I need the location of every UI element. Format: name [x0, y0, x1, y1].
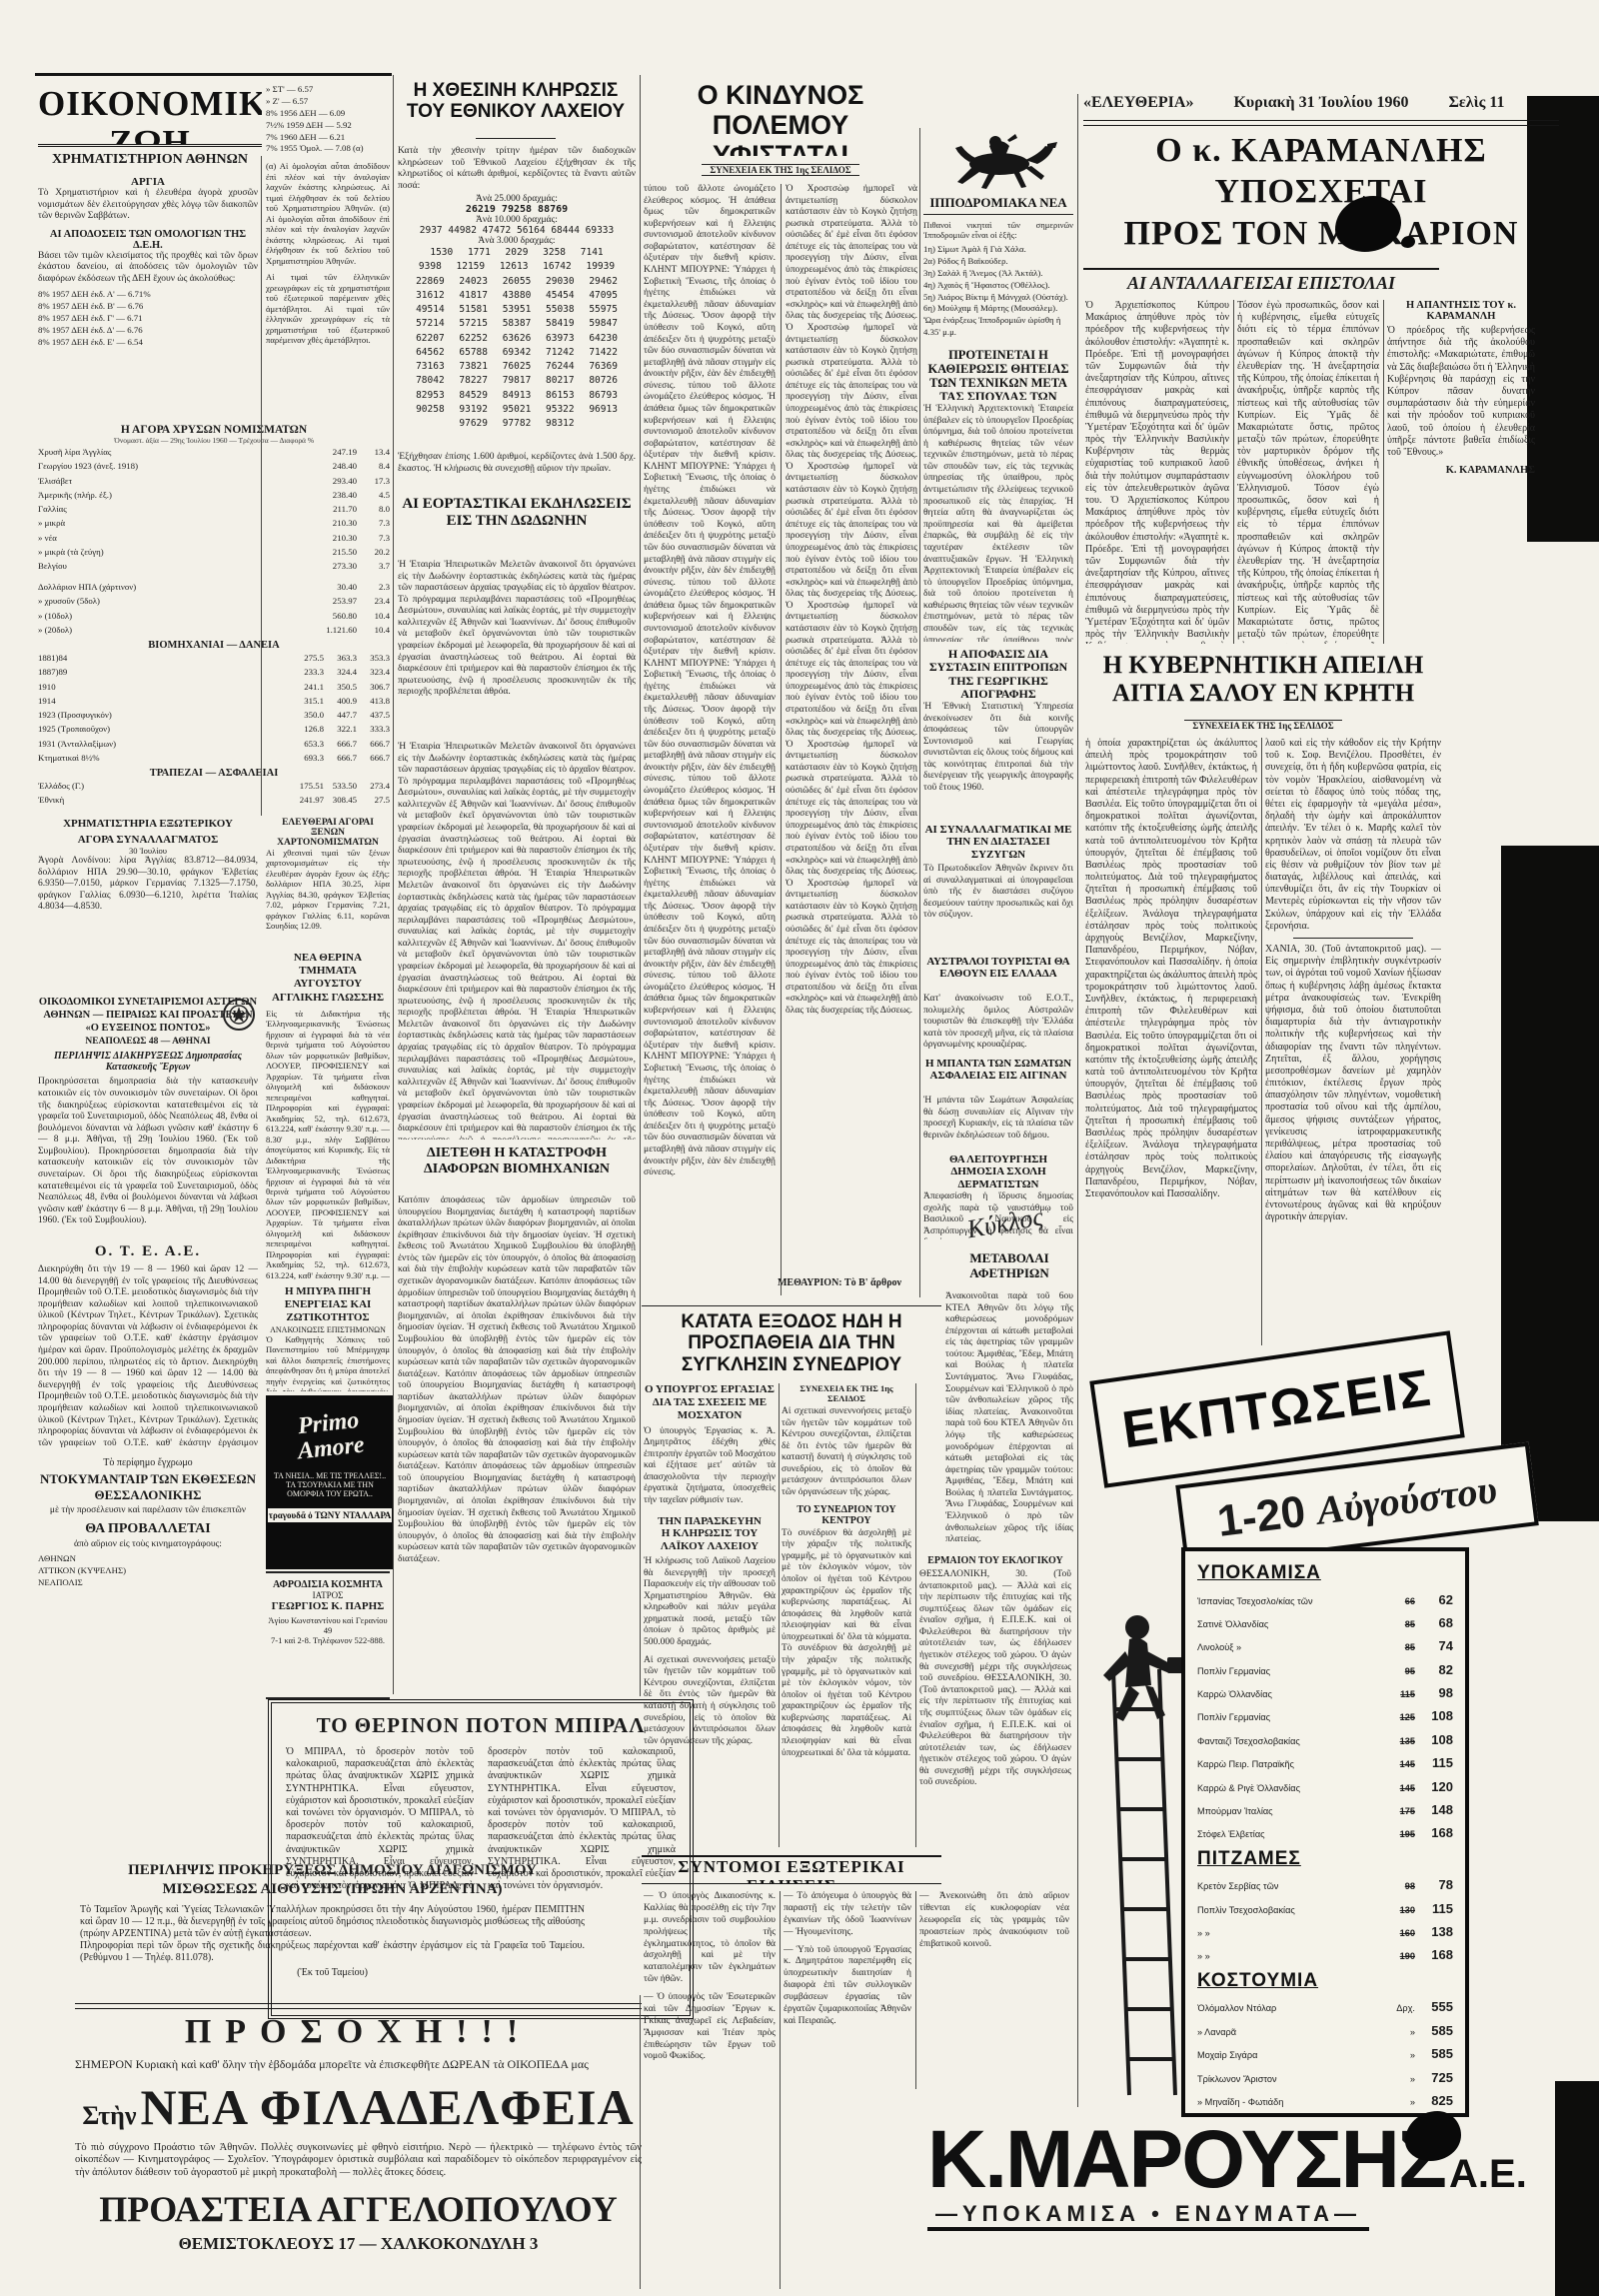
list-item: 8% 1957 ΔΕΗ ἐκδ. Ε' — 6.54: [38, 337, 258, 349]
crete-col2: λαοῦ καὶ εἰς τὴν κάθοδον εἰς τὴν Κρήτην …: [1265, 738, 1441, 1345]
table-row: » χρυσοῦν (5δολ)253.9723.4: [38, 594, 390, 608]
list-item: — Ὁ ὑπουργὸς Δικαιοσύνης κ. Καλλίας θὰ π…: [644, 1891, 776, 1986]
agora-title: ΑΓΟΡΑ ΣΥΝΑΛΛΑΓΜΑΤΟΣ: [38, 834, 258, 846]
table-row: » »190168: [1197, 1943, 1453, 1966]
coop-address: ΝΕΑΠΟΛΕΩΣ 48 — ΑΘΗΝΑΙ: [38, 1037, 258, 1047]
table-row: Φανταιζὶ Τσεχοσλοβακίας135108: [1197, 1728, 1453, 1751]
table-row: Μπούρμαν Ἰταλίας175148: [1197, 1798, 1453, 1821]
shortnews-title: ΣΥΝΤΟΜΟΙ ΕΞΩΤΕΡΙΚΑΙ ΕΙΔΗΣΕΙΣ: [642, 1855, 941, 1884]
financial-header-text: ΟΙΚΟΝΟΜΙΚΗ ΖΩΗ: [38, 84, 262, 147]
bond-rows: 1881)84275.5363.3353.31887)89233.3324.43…: [38, 651, 390, 765]
table-row: Χρυσῆ λίρα Ἀγγλίας247.1913.4: [38, 445, 390, 459]
table-row: » Λαναρᾶ»585: [1197, 2019, 1453, 2042]
congress-body2b: Τὸ συνέδριον θὰ ἀσχοληθῇ μὲ τὴν χάραξιν …: [782, 1528, 911, 1760]
reply-heading: Η ΑΠΑΝΤΗΣΙΣ ΤΟΥ κ. ΚΑΡΑΜΑΝΛΗ: [1387, 300, 1535, 322]
list-item: » ΣΤ' — 6.57: [266, 84, 390, 96]
war-ender: ΜΕΘΑΥΡΙΟΝ: Τὸ Β' ἄρθρον: [760, 1277, 919, 1293]
bills-title: ΑΙ ΣΥΝΑΛΛΑΓΜΑΤΙΚΑΙ ΜΕ ΤΗΝ ΕΝ ΔΙΑΣΤΑΣΕΙ Σ…: [923, 824, 1073, 860]
deh-rate-list-right: » ΣΤ' — 6.57» Ζ' — 6.578% 1956 ΔΕΗ — 6.0…: [266, 84, 390, 155]
suits-rows: Ὁλόμαλλον ΝτόλαρΔρχ.555» Λαναρᾶ»585Μοχαὶ…: [1197, 1995, 1453, 2117]
beer-article: Η ΜΠΥΡΑ ΠΗΓΗ ΕΝΕΡΓΕΙΑΣ ΚΑΙ ΖΩΤΙΚΟΤΗΤΟΣ Α…: [266, 1285, 390, 1391]
doctor-ad-line4: Ἁγίου Κωνσταντίνου καὶ Γερανίου 49: [266, 1615, 390, 1635]
shirts-rows: Ἰσπανίας Τσεχοσλο/κίας τῶν6662Σατινὲ Ὁλλ…: [1197, 1588, 1453, 1845]
primo-line1: ΤΑ ΝΗΣΙΑ.. ΜΕ ΤΙΣ ΤΡΕΛΛΕΣ!..: [268, 1471, 392, 1480]
list-item: 7% 1960 ΔΕΗ — 6.21: [266, 132, 390, 144]
rule-col3: [640, 75, 641, 1696]
financial-rates-right: » ΣΤ' — 6.57» Ζ' — 6.578% 1956 ΔΕΗ — 6.0…: [266, 84, 390, 418]
doctor-ad-line1: ΑΦΡΟΔΙΣΙΑ ΚΟΣΜΗΤΑ: [266, 1579, 390, 1590]
prize-25000-label: Ἀνὰ 25.000 δραχμάς:: [398, 194, 636, 204]
doctor-ad-line3: ΓΕΩΡΓΙΟΣ Κ. ΠΑΡΗΣ: [266, 1600, 390, 1612]
lottery-intro: Κατὰ τὴν χθεσινὴν τρίτην ἡμέραν τῶν διαδ…: [398, 146, 636, 192]
congress-sub1: ΤΟ ΣΥΝΕΔΡΙΟΝ ΤΟΥ ΚΕΝΤΡΟΥ: [782, 1504, 911, 1526]
summer-classes-body: Εἰς τὰ Διδακτήρια τῆς Ἑλληνοαμερικανικῆς…: [266, 1009, 390, 1281]
table-row: » (20δολ)1.121.6010.4: [38, 623, 390, 636]
congress-col1: Ο ΥΠΟΥΡΓΟΣ ΕΡΓΑΣΙΑΣ ΔΙΑ ΤΑΣ ΣΧΕΣΕΙΣ ΜΕ Μ…: [644, 1383, 776, 1847]
table-row: » Μηναΐδη - Φωτιάδη»825: [1197, 2089, 1453, 2112]
list-item: — Ὑπὸ τοῦ ὑπουργοῦ Ἐργασίας κ. Δημητράτο…: [784, 1945, 911, 2028]
financial-header: ΟΙΚΟΝΟΜΙΚΗ ΖΩΗ: [38, 84, 262, 147]
land-ad-address: ΘΕΜΙΣΤΟΚΛΕΟΥΣ 17 — ΧΑΛΚΟΚΟΝΔΥΛΗ 3: [75, 2234, 642, 2254]
doctor-ad-line5: 7-1 καὶ 2-8. Τηλέφωνον 522-888.: [266, 1635, 390, 1645]
list-item: — Τὸ ἀπόγευμα ὁ ὑπουργὸς θὰ παραστῇ εἰς …: [784, 1891, 911, 1939]
list-item: ΑΘΗΝΩΝ: [38, 1553, 258, 1565]
documentary-mid: μὲ τὴν προσέλευσιν καὶ παρέλασιν τῶν ἐπι…: [38, 1505, 258, 1515]
list-item: 8% 1957 ΔΕΗ ἐκδ. Β' — 6.76: [38, 301, 258, 313]
table-row: 1923 (Προσφυγικόν)350.0447.7437.5: [38, 708, 390, 722]
fx-right: ΕΛΕΥΘΕΡΑΙ ΑΓΟΡΑΙ ΞΕΝΩΝ ΧΑΡΤΟΝΟΜΙΣΜΑΤΩΝ Α…: [266, 818, 390, 948]
congress-col2: ΣΥΝΕΧΕΙΑ ΕΚ ΤΗΣ 1ης ΣΕΛΙΔΟΣ Αἱ σχετικαὶ …: [782, 1383, 911, 1847]
congress-body3: ΘΕΣΣΑΛΟΝΙΚΗ, 30. (Τοῦ ἀνταποκριτοῦ μας).…: [919, 1569, 1071, 1789]
table-row: 1931 (Ἀνταλλαξίμων)653.3666.7666.7: [38, 737, 390, 751]
documentary-title: ΝΤΟΚΥΜΑΝΤΑΙΡ ΤΩΝ ΕΚΘΕΣΕΩΝ ΘΕΣΣΑΛΟΝΙΚΗΣ: [38, 1471, 258, 1502]
ote-body: Διεκηρύχθη ὅτι τὴν 19 — 8 — 1960 καὶ ὥρα…: [38, 1264, 258, 1449]
financial-subheader: ΧΡΗΜΑΤΙΣΤΗΡΙΟΝ ΑΘΗΝΩΝ: [35, 152, 265, 172]
lottery-title: Η ΧΘΕΣΙΝΗ ΚΛΗΡΩΣΙΣ ΤΟΥ ΕΘΝΙΚΟΥ ΛΑΧΕΙΟΥ: [396, 80, 636, 132]
agora-date: 30 Ἰουλίου: [38, 846, 258, 856]
list-item: 62207 62252 63626 63973 64230: [398, 332, 636, 346]
table-row: 1910241.1350.5306.7: [38, 680, 390, 694]
laiko-title1: ΤΗΝ ΠΑΡΑΣΚΕΥΗΝ: [644, 1515, 776, 1527]
land-ad-body: Τὸ πιὸ σύγχρονο Προάστιο τῶν Ἀθηνῶν. Πολ…: [75, 2142, 642, 2180]
horse-jockey-icon: [929, 128, 1069, 192]
prize-25000-numbers: 26219 79258 88769: [398, 204, 636, 215]
beer-body: Ὁ Καθηγητὴς Χόπκινς τοῦ Πανεπιστημίου το…: [266, 1334, 390, 1391]
table-row: Τρίκλωνον Ἄριστον»725: [1197, 2066, 1453, 2089]
list-item: 22869 24023 26055 29030 29462: [398, 275, 636, 289]
prize-3000-label: Ἀνὰ 3.000 δραχμάς:: [398, 236, 636, 246]
list-item: 90258 93192 95021 95322 96913: [398, 403, 636, 417]
table-row: Μοχαὶρ Σιγάρα»585: [1197, 2042, 1453, 2065]
rule-news-2: [915, 1891, 916, 2089]
list-item: 2α) Ρόδος ἢ Βαϊκούδερ.: [923, 256, 1073, 268]
table-row: Γεωργίου 1923 (ἀνεξ. 1918)248.408.4: [38, 459, 390, 473]
shortnews-col3: — Ἀνεκοινώθη ὅτι ἀπὸ αὔριον τίθενται εἰς…: [919, 1891, 1069, 2087]
table-row: » (10δολ)560.8010.4: [38, 609, 390, 623]
table-row: Γαλλίας211.708.0: [38, 502, 390, 516]
deh-rate-list: 8% 1957 ΔΕΗ ἐκδ. Α' — 6.71%8% 1957 ΔΕΗ ἐ…: [38, 289, 258, 348]
list-item: Ὥρα ἐνάρξεως Ἱπποδρομιῶν ὡρίσθη ἡ 4.35' …: [923, 315, 1073, 339]
sale-dates-num: 1-20: [1215, 1487, 1309, 1547]
shirts-heading: ΥΠΟΚΑΜΙΣΑ: [1197, 1559, 1453, 1588]
band-title: Η ΜΠΑΝΤΑ ΤΩΝ ΣΩΜΑΤΩΝ ΑΣΦΑΛΕΙΑΣ ΕΙΣ ΑΙΓΙΝ…: [923, 1058, 1073, 1092]
prosoxi-top-rule: [75, 2003, 642, 2009]
laiko-title2: Η ΚΛΗΡΩΣΙΣ ΤΟΥ ΛΑΪΚΟΥ ΛΑΧΕΙΟΥ: [644, 1527, 776, 1553]
fx-left: ΧΡΗΜΑΤΙΣΤΗΡΙΑ ΕΞΩΤΕΡΙΚΟΥ ΑΓΟΡΑ ΣΥΝΑΛΛΑΓΜ…: [38, 818, 258, 990]
table-row: Καρρὼ Ὁλλανδίας11598: [1197, 1681, 1453, 1704]
sale-dates-month: Αὐγούστου: [1314, 1465, 1499, 1534]
list-item: — Ὁ ὑπουργὸς τῶν Ἐσωτερικῶν καὶ τῶν Δημο…: [644, 1992, 776, 2063]
list-item: 7% 1955 Ὁμολ. — 7.08 (α): [266, 143, 390, 155]
table-row: Ποπλὶν Τσεχοσλοβακίας130115: [1197, 1897, 1453, 1920]
primo-amore-ad: Primo Amore ΤΑ ΝΗΣΙΑ.. ΜΕ ΤΙΣ ΤΡΕΛΛΕΣ!..…: [266, 1395, 394, 1569]
doctor-ad: ΑΦΡΟΔΙΣΙΑ ΚΟΣΜΗΤΑ ΙΑΤΡΟΣ ΓΕΩΡΓΙΟΣ Κ. ΠΑΡ…: [266, 1571, 390, 1699]
tender-info: Πληροφορίαι περὶ τῶν ὅρων τῆς σχετικῆς δ…: [80, 1940, 585, 1964]
table-row: Βελγίου273.303.7: [38, 559, 390, 573]
tourists-title: ΑΥΣΤΡΑΛΟΙ ΤΟΥΡΙΣΤΑΙ ΘΑ ΕΛΘΟΥΝ ΕΙΣ ΕΛΛΑΔΑ: [923, 956, 1073, 990]
list-item: 7½% 1959 ΔΕΗ — 5.92: [266, 120, 390, 132]
table-row: 1887)89233.3324.4323.4: [38, 665, 390, 679]
gold-rows: Χρυσῆ λίρα Ἀγγλίας247.1913.4Γεωργίου 192…: [38, 445, 390, 576]
masthead-date: Κυριακὴ 31 Ἰουλίου 1960: [1233, 94, 1408, 111]
xrimexot-mini: Αἱ τιμαὶ τῶν ἑλληνικῶν χρεωγράφων εἰς τὰ…: [266, 272, 390, 345]
rule-war-mid: [781, 184, 782, 1295]
crete-title: Η ΚΥΒΕΡΝΗΤΙΚΗ ΑΠΕΙΛΗ ΑΙΤΙΑ ΣΑΛΟΥ ΕΝ ΚΡΗΤ…: [1083, 652, 1443, 712]
table-row: Ποπλὶν Γερμανίας125108: [1197, 1704, 1453, 1727]
dollar-rows: Δολλάριον ΗΠΑ (χάρτινον)30.402.3» χρυσοῦ…: [38, 580, 390, 636]
table-row: » νέα210.307.3: [38, 531, 390, 545]
ote-title: Ο. Τ. Ε. Α.Ε.: [38, 1243, 258, 1260]
congress-col3: ΕΡΜΑΙΟΝ ΤΟΥ ΕΚΛΟΓΙΚΟΥ ΘΕΣΣΑΛΟΝΙΚΗ, 30. (…: [919, 1555, 1071, 1847]
summer-classes-title: ΝΕΑ ΘΕΡΙΝΑ ΤΜΗΜΑΤΑ ΑΥΓΟΥΣΤΟΥ ΑΓΓΛΙΚΗΣ ΓΛ…: [266, 952, 390, 1005]
table-row: Σατινὲ Ὁλλανδίας8568: [1197, 1611, 1453, 1634]
documentary-intro: Τὸ περίφημο ἔγχρωμο: [38, 1457, 258, 1468]
table-row: » »160138: [1197, 1920, 1453, 1943]
rule-crete-mid: [1261, 738, 1262, 1345]
masthead: «ΕΛΕΥΘΕΡΙΑ» Κυριακὴ 31 Ἰουλίου 1960 Σελὶ…: [1083, 94, 1559, 118]
list-item: 5η) Ἀιάρος Βίκτιμ ἢ Μάνγχαλ (Οὐστάχ).: [923, 292, 1073, 304]
summer-classes: ΝΕΑ ΘΕΡΙΝΑ ΤΜΗΜΑΤΑ ΑΥΓΟΥΣΤΟΥ ΑΓΓΛΙΚΗΣ ΓΛ…: [266, 952, 390, 1281]
list-item: 3η) Σαλὰλ ἢ Ἄνεμος (Ἀλ Ἀκτάλ).: [923, 268, 1073, 280]
hippodrome-intro: Πιθανοὶ νικηταὶ τῶν σημερινῶν Ἱπποδρομιῶ…: [923, 220, 1073, 242]
list-item: 64562 65788 69342 71242 71422: [398, 346, 636, 360]
tourists-body: Κατ' ἀνακοίνωσιν τοῦ Ε.Ο.Τ., πολυμελὴς ὅ…: [923, 994, 1073, 1052]
rule-congress-1: [779, 1383, 780, 1847]
hippodrome-tips: 1η) Σίμωτ Ἀμὰλ ἢ Γιὰ Χάλα.2α) Ρόδος ἢ Βα…: [923, 244, 1073, 342]
school-title: ΘΑ ΛΕΙΤΟΥΡΓΗΣΗ ΔΗΜΟΣΙΑ ΣΧΟΛΗ ΔΕΡΜΑΤΙΣΤΩΝ: [923, 1153, 1073, 1187]
war-body-col1: τύπου τοῦ ἄλλοτε ὠνομάζετο ἐλεύθερος κόσ…: [644, 184, 776, 1291]
table-row: Ἐλισάβετ293.4017.3: [38, 474, 390, 488]
table-row: Δολλάριον ΗΠΑ (χάρτινον)30.402.3: [38, 580, 390, 594]
table-row: Ἐμπορικὴ381.37308.4927.3: [38, 808, 390, 813]
masthead-rule: [1083, 120, 1559, 126]
table-row: Ὁλόμαλλον ΝτόλαρΔρχ.555: [1197, 1995, 1453, 2018]
depots-title: ΜΕΤΑΒΟΛΑΙ ΑΦΕΤΗΡΙΩΝ: [945, 1251, 1073, 1287]
crete-divider: [1293, 938, 1413, 939]
congress-body2a: Αἱ σχετικαὶ συνεννοήσεις μεταξὺ τῶν ἡγετ…: [782, 1406, 911, 1499]
primo-line2: ΤΑ ΤΣΟΥΡΑΚΙΑ ΜΕ ΤΗΝ ΟΜΟΡΦΙΑ ΤΟΥ ΕΡΩΤΑ..: [268, 1480, 392, 1498]
table-row: Ποπλὶν Γερμανίας9582: [1197, 1658, 1453, 1681]
land-ad-company: ΠΡΟΑΣΤΕΙΑ ΑΓΓΕΛΟΠΟΥΛΟΥ: [75, 2188, 642, 2230]
eleuth-title: ΕΛΕΥΘΕΡΑΙ ΑΓΟΡΑΙ ΞΕΝΩΝ ΧΑΡΤΟΝΟΜΙΣΜΑΤΩΝ: [266, 818, 390, 848]
lottery-outro: Ἐξήχθησαν ἐπίσης 1.600 ἀριθμοί, κερδίζον…: [398, 452, 636, 490]
labour-minister-title: Ο ΥΠΟΥΡΓΟΣ ΕΡΓΑΣΙΑΣ ΔΙΑ ΤΑΣ ΣΧΕΣΕΙΣ ΜΕ Μ…: [644, 1383, 776, 1423]
list-item: 8% 1957 ΔΕΗ ἐκδ. Α' — 6.71%: [38, 289, 258, 301]
bills-body: Τὸ Πρωτοδικεῖον Ἀθηνῶν ἔκρινεν ὅτι αἱ συ…: [923, 864, 1073, 950]
table-row: Ἀμερικῆς (πλήρ. ἐξ.)238.404.5: [38, 488, 390, 502]
prize-10000-label: Ἀνὰ 10.000 δραχμάς:: [398, 215, 636, 225]
list-item: 1530 1771 2029 3258 7141: [398, 246, 636, 260]
land-ad-big: ΝΕΑ ΦΙΛΑΔΕΛΦΕΙΑ: [141, 2079, 635, 2135]
technical-body: Ἡ Ἑλληνικὴ Ἀρχιτεκτονικὴ Ἑταιρεία ὑπέβαλ…: [923, 404, 1073, 642]
coop-notice: ΟΙΚΟΔΟΜΙΚΟΙ ΣΥΝΕΤΑΙΡΙΣΜΟΙ ΑΣΤΕΓΩΝ ΑΘΗΝΩΝ…: [38, 996, 258, 1237]
land-ad-bigline: Στὴν ΝΕΑ ΦΙΛΑΔΕΛΦΕΙΑ: [75, 2078, 642, 2136]
documentary-tail: ἀπὸ αὔριον εἰς τοὺς κινηματογράφους:: [38, 1539, 258, 1549]
masthead-page: Σελὶς 11: [1448, 94, 1504, 111]
pyjamas-heading: ΠΙΤΖΑΜΕΣ: [1197, 1845, 1453, 1874]
band-body: Ἡ μπάντα τῶν Σωμάτων Ἀσφαλείας θὰ δώσῃ σ…: [923, 1096, 1073, 1149]
census-body: Ἡ Ἐθνικὴ Στατιστικὴ Ὑπηρεσία ἀνεκοίνωσεν…: [923, 702, 1073, 818]
sale-price-box: ΥΠΟΚΑΜΙΣΑ Ἰσπανίας Τσεχοσλο/κίας τῶν6662…: [1181, 1547, 1469, 2117]
apoleiai-body: Βάσει τῶν τιμῶν κλεισίματος τῆς προχθὲς …: [38, 251, 258, 286]
list-item: — Ἀνεκοινώθη ὅτι ἀπὸ αὔριον τίθενται εἰς…: [919, 1891, 1069, 1950]
war-title: Ο ΚΙΝΔΥΝΟΣ ΠΟΛΕΜΟΥ ΥΦΙΣΤΑΤΑΙ ΠΡΑΓΜΑΤΙ;: [642, 80, 919, 156]
table-row: Σακάκι τύπου Ἰταλίας Φιμπρὰν»215: [1197, 2112, 1453, 2117]
crete-col1: ἡ ὁποία χαρακτηρίζεται ὡς ἀκάλυπτος ἀπει…: [1085, 738, 1257, 1345]
congress-sub2: ΕΡΜΑΙΟΝ ΤΟΥ ΕΚΛΟΓΙΚΟΥ: [919, 1555, 1071, 1566]
karamanlis-col3: Η ΑΠΑΝΤΗΣΙΣ ΤΟΥ κ. ΚΑΡΑΜΑΝΛΗ Ὁ πρόεδρος …: [1387, 300, 1535, 644]
list-item: 1η) Σίμωτ Ἀμὰλ ἢ Γιὰ Χάλα.: [923, 244, 1073, 256]
dietethi-title: ΔΙΕΤΕΘΗ Η ΚΑΤΑΣΤΡΟΦΗ ΔΙΑΦΟΡΩΝ ΒΙΟΜΗΧΑΝΙΩ…: [398, 1146, 636, 1191]
congress-continuation: ΣΥΝΕΧΕΙΑ ΕΚ ΤΗΣ 1ης ΣΕΛΙΔΟΣ: [782, 1383, 911, 1403]
list-item: 82953 84529 84913 86153 86793: [398, 389, 636, 403]
table-row: 1914315.1400.9413.8: [38, 694, 390, 708]
hippodrome-title: ΙΠΠΟΔΡΟΜΙΑΚΑ ΝΕΑ: [923, 196, 1073, 215]
bonds-title: ΒΙΟΜΗΧΑΝΙΑΙ — ΔΑΝΕΙΑ: [38, 640, 390, 651]
list-item: 73163 73821 76025 76244 76369: [398, 360, 636, 374]
land-ad-stin: Στὴν: [82, 2101, 136, 2130]
land-ad: ΠΡΟΣΟΧΗ!!! ΣΗΜΕΡΟΝ Κυριακὴ καὶ καθ' ὅλην…: [75, 2013, 642, 2291]
masthead-paper: «ΕΛΕΥΘΕΡΙΑ»: [1083, 94, 1193, 111]
table-row: Κτηματικαὶ 8½%693.3666.7666.7: [38, 751, 390, 765]
list-item: 8% 1957 ΔΕΗ ἐκδ. Δ' — 6.76: [38, 325, 258, 337]
labour-minister-body: Ὁ ὑπουργὸς Ἐργασίας κ. Ἀ. Δημητρᾶτος ἐδέ…: [644, 1426, 776, 1507]
pyjamas-rows: Κρετὸν Σερβίας τῶν9878Ποπλὶν Τσεχοσλοβακ…: [1197, 1873, 1453, 1967]
xrimexot-title: ΧΡΗΜΑΤΙΣΤΗΡΙΑ ΕΞΩΤΕΡΙΚΟΥ: [38, 818, 258, 830]
list-item: » Ζ' — 6.57: [266, 96, 390, 108]
coop-body: Προκηρύσσεται δημοπρασία διὰ τὴν κατασκε…: [38, 1077, 258, 1227]
rule-col4: [919, 128, 920, 1297]
argia-body: Τὸ Χρηματιστήριον καὶ ἡ ἐλευθέρα ἀγορὰ χ…: [38, 188, 258, 223]
bank-rows: Ἑλλάδος (Γ.)175.51533.50273.4Ἐθνικὴ241.9…: [38, 779, 390, 812]
sale-banner-text: ΕΚΠΤΩΣΕΙΣ: [1118, 1358, 1435, 1461]
scan-edge-mid-right: [1501, 846, 1599, 1521]
depots-body: Ἀνακοινοῦται παρὰ τοῦ 6ου ΚΤΕΛ Ἀθηνῶν ὅτ…: [945, 1291, 1073, 1547]
mpiral-title: ΤΟ ΘΕΡΙΝΟΝ ΠΟΤΟΝ ΜΠΙΡΑΛ: [286, 1713, 676, 1738]
gold-columns: Ὀνομαστ. ἀξία — 29ης Ἰουλίου 1960 — Τρέχ…: [38, 436, 390, 445]
dodoni-body: Ἡ Ἑταιρία Ἠπειρωτικῶν Μελετῶν ἀνακοινοῖ …: [398, 560, 636, 738]
crete-chania: ΧΑΝΙΑ, 30. (Τοῦ ἀνταποκριτοῦ μας). — Εἰς…: [1265, 944, 1441, 1223]
coop-emblem-icon: [222, 998, 256, 1032]
coop-subtitle: ΠΕΡΙΛΗΨΙΣ ΔΙΑΚΗΡΥΞΕΩΣ Δημοπρασίας Κατασκ…: [38, 1051, 258, 1073]
crete-body2: λαοῦ καὶ εἰς τὴν κάθοδον εἰς τὴν Κρήτην …: [1265, 738, 1441, 933]
tender-title: ΠΕΡΙΛΗΨΙΣ ΠΡΟΚΗΡΥΞΕΩΣ ΔΗΜΟΣΙΟΥ ΔΙΑΓΩΝΙΣΜ…: [80, 1861, 585, 1899]
financial-argia: ΑΡΓΙΑ Τὸ Χρηματιστήριον καὶ ἡ ἐλευθέρα ἀ…: [38, 176, 258, 420]
brand-tagline: —ΥΠΟΚΑΜΙΣΑ • ΕΝΔΥΜΑΤΑ—: [927, 2201, 1369, 2231]
table-row: 1925 (Τροπαιοῦχον)126.8322.1333.3: [38, 722, 390, 736]
brand-name: Κ.ΜΑΡΟΥΣΗΣ: [927, 2119, 1445, 2205]
karamanlis-col2: Τόσον ἐγὼ προσωπικῶς, ὅσον καὶ ἡ κυβέρνη…: [1237, 300, 1379, 644]
shortnews-col1: — Ὁ ὑπουργὸς Δικαιοσύνης κ. Καλλίας θὰ π…: [644, 1891, 776, 2289]
rule-fin-mid: [261, 156, 262, 816]
list-item: 31612 41817 43880 45454 47095: [398, 289, 636, 303]
banks-title: ΤΡΑΠΕΖΑΙ — ΑΣΦΑΛΕΙΑΙ: [38, 768, 390, 779]
lottery-number-grid: 1530 1771 2029 3258 71419398 12159 12613…: [398, 246, 636, 431]
list-item: 4η) Ἀχαιὸς ἢ Ἥφαιστος (Ὀθέλλος).: [923, 280, 1073, 292]
table-row: Κρετὸν Σερβίας τῶν9878: [1197, 1873, 1453, 1896]
rule-col5: [1077, 94, 1078, 2107]
lottery-results: Ἀνὰ 25.000 δραχμάς: 26219 79258 88769 Ἀν…: [398, 194, 636, 452]
list-item: ΝΕΑΠΟΛΙΣ: [38, 1577, 258, 1589]
karamanlis-col1: Ὁ Ἀρχιεπίσκοπος Κύπρου Μακάριος ἀπηύθυνε…: [1085, 300, 1229, 644]
primo-line3: τραγουδᾶ ὁ ΤΩΝΥ ΝΤΑΛΛΑΡΑ: [268, 1508, 392, 1522]
beer-sub: ΑΝΑΚΟΙΝΩΣΙΣ ΕΠΙΣΤΗΜΟΝΩΝ: [266, 1325, 390, 1334]
list-item: 8% 1957 ΔΕΗ ἐκδ. Γ' — 6.71: [38, 313, 258, 325]
brand-suffix: Α.Ε.: [1449, 2152, 1527, 2196]
doctor-ad-line2: ΙΑΤΡΟΣ: [266, 1590, 390, 1600]
rule-news-1: [780, 1891, 781, 2289]
list-item: ΑΤΤΙΚΟΝ (ΚΥΨΕΛΗΣ): [38, 1565, 258, 1577]
documentary-bold: ΘΑ ΠΡΟΒΑΛΛΕΤΑΙ: [38, 1521, 258, 1537]
gold-title: Η ΑΓΟΡΑ ΧΡΥΣΩΝ ΝΟΜΙΣΜΑΤΩΝ: [38, 424, 390, 436]
list-item: 9398 12159 12613 16742 19939: [398, 260, 636, 274]
table-row: Ἐθνικὴ241.97308.4527.5: [38, 793, 390, 807]
beer-title: Η ΜΠΥΡΑ ΠΗΓΗ ΕΝΕΡΓΕΙΑΣ ΚΑΙ ΖΩΤΙΚΟΤΗΤΟΣ: [266, 1285, 390, 1325]
rule-col2: [393, 75, 394, 1694]
table-row: Ἰσπανίας Τσεχοσλο/κίας τῶν6662: [1197, 1588, 1453, 1611]
gold-market-table: Η ΑΓΟΡΑ ΧΡΥΣΩΝ ΝΟΜΙΣΜΑΤΩΝ Ὀνομαστ. ἀξία …: [38, 424, 390, 576]
dodoni-title: ΑΙ ΕΟΡΤΑΣΤΙΚΑΙ ΕΚΔΗΛΩΣΕΙΣ ΕΙΣ ΤΗΝ ΔΩΔΩΝΗ…: [398, 496, 636, 554]
table-row: Καρρὼ & Ριγὲ Ὁλλανδίας145120: [1197, 1775, 1453, 1798]
prize-10000-numbers: 2937 44982 47472 56164 68444 69333: [398, 225, 636, 236]
list-item: 78042 78227 79817 80217 80726: [398, 374, 636, 388]
tender-sig: (Ἐκ τοῦ Ταμείου): [80, 1967, 585, 1978]
financial-top-rule: [35, 73, 392, 76]
rule-col3b: [640, 1995, 641, 2289]
table-row: » μικρὰ210.307.3: [38, 516, 390, 530]
table-row: 1881)84275.5363.3353.3: [38, 651, 390, 665]
lottery-title-rule: [476, 138, 556, 139]
table-row: Στόφελ Ἐλβετίας195168: [1197, 1821, 1453, 1844]
newspaper-page: ΟΙΚΟΝΟΜΙΚΗ ΖΩΗ ΧΡΗΜΑΤΙΣΤΗΡΙΟΝ ΑΘΗΝΩΝ ΑΡΓ…: [0, 0, 1599, 2296]
shortnews-col2: — Τὸ ἀπόγευμα ὁ ὑπουργὸς θὰ παραστῇ εἰς …: [784, 1891, 911, 2289]
tender-summary: ΠΕΡΙΛΗΨΙΣ ΠΡΟΚΗΡΥΞΕΩΣ ΔΗΜΟΣΙΟΥ ΔΙΑΓΩΝΙΣΜ…: [80, 1861, 585, 1999]
crete-continuation: ΣΥΝΕΧΕΙΑ ΕΚ ΤΗΣ 1ης ΣΕΛΙΔΟΣ: [1083, 716, 1443, 731]
table-row: » μικρὰ (τὰ ζεύγη)215.5020.2: [38, 545, 390, 559]
rule-congress-2: [915, 1383, 916, 1847]
list-item: 49514 51581 53951 55038 55975: [398, 303, 636, 317]
congress-title: ΚΑΤΑΤΑ ΕΞΟΔΟΣ ΗΔΗ Η ΠΡΟΣΠΑΘΕΙΑ ΔΙΑ ΤΗΝ Σ…: [642, 1311, 941, 1377]
list-item: 8% 1956 ΔΕΗ — 6.09: [266, 108, 390, 120]
primo-title: Primo Amore: [266, 1405, 394, 1468]
rule-kar-1: [1233, 300, 1234, 644]
table-row: Ἑλλάδος (Γ.)175.51533.50273.4: [38, 779, 390, 793]
eleuth-body: Αἱ χθεσιναὶ τιμαὶ τῶν ξένων χαρτονομισμά…: [266, 848, 390, 932]
ote-notice: Ο. Τ. Ε. Α.Ε. Διεκηρύχθη ὅτι τὴν 19 — 8 …: [38, 1243, 258, 1449]
dietethi-body: Κατόπιν ἀποφάσεως τῶν ἁρμοδίων ὑπηρεσιῶν…: [398, 1195, 636, 1691]
bonds-table: ΒΙΟΜΗΧΑΝΙΑΙ — ΔΑΝΕΙΑ 1881)84275.5363.335…: [38, 640, 390, 812]
karamanlis-signature: Κ. ΚΑΡΑΜΑΝΛΗΣ: [1387, 465, 1535, 476]
deh-note: (α) Αἱ ὁμολογίαι αὗται ἀποδίδουν ἐπὶ πλέ…: [266, 161, 390, 266]
karamanlis-title: Ο κ. ΚΑΡΑΜΑΝΛΗΣ ΥΠΟΣΧΕΤΑΙ ΠΡΟΣ ΤΟΝ ΜΑΚΑΡ…: [1081, 130, 1561, 258]
documentary-ad: Τὸ περίφημο ἔγχρωμο ΝΤΟΚΥΜΑΝΤΑΙΡ ΤΩΝ ΕΚΘ…: [38, 1457, 258, 1689]
table-row: Λινολοὺξ »8574: [1197, 1634, 1453, 1657]
letters-subhead: ΑΙ ΑΝΤΑΛΛΑΓΕΙΣΑΙ ΕΠΙΣΤΟΛΑΙ: [1083, 268, 1439, 299]
laiko-body: Ἡ κλήρωσις τοῦ Λαϊκοῦ Λαχείου θὰ διενεργ…: [644, 1556, 776, 1649]
argia-title: ΑΡΓΙΑ: [38, 176, 258, 188]
congress-body1: Αἱ σχετικαὶ συνεννοήσεις μεταξὺ τῶν ἡγετ…: [644, 1655, 776, 1748]
rule-kar-2: [1383, 300, 1384, 644]
list-item: 6η) Μούλχαμ ἢ Μάρτης (Μουσάλεμ).: [923, 303, 1073, 315]
war-body-col2: Ὁ Χροστσὼφ ἠμπορεῖ νὰ ἀντιμετωπίσῃ δύσκο…: [786, 184, 917, 1267]
ladder-man-icon: [1085, 1599, 1189, 2099]
congress-top-rule: [642, 1305, 941, 1306]
technical-title: ΠΡΟΤΕΙΝΕΤΑΙ Η ΚΑΘΙΕΡΩΣΙΣ ΘΗΤΕΙΑΣ ΤΩΝ ΤΕΧ…: [923, 348, 1073, 400]
karamanlis-reply: Ὁ πρόεδρος τῆς κυβερνήσεως ἀπήντησε διὰ …: [1387, 325, 1535, 459]
dodoni-body-cont: Ἡ Ἑταιρία Ἠπειρωτικῶν Μελετῶν ἀνακοινοῖ …: [398, 742, 636, 1140]
apoleiai-title: ΑΙ ΑΠΟΔΟΣΕΙΣ ΤΩΝ ΟΜΟΛΟΓΙΩΝ ΤΗΣ Δ.Ε.Η.: [38, 229, 258, 251]
cinema-list: ΑΘΗΝΩΝΑΤΤΙΚΟΝ (ΚΥΨΕΛΗΣ)ΝΕΑΠΟΛΙΣ: [38, 1553, 258, 1589]
war-continuation: ΣΥΝΕΧΕΙΑ ΕΚ ΤΗΣ 1ης ΣΕΛΙΔΟΣ: [642, 160, 919, 176]
brand-logo: Κ.ΜΑΡΟΥΣΗΣ Α.Ε. —ΥΠΟΚΑΜΙΣΑ • ΕΝΔΥΜΑΤΑ—: [927, 2119, 1567, 2269]
census-title: Η ΑΠΟΦΑΣΙΣ ΔΙΑ ΣΥΣΤΑΣΙΝ ΕΠΙΤΡΟΠΩΝ ΤΗΣ ΓΕ…: [923, 648, 1073, 698]
list-item: 97629 97782 98312: [398, 417, 636, 431]
tender-body: Τὸ Ταμεῖον Ἀρωγῆς καὶ Ὑγείας Τελωνιακῶν …: [80, 1904, 585, 1941]
list-item: 57214 57215 58387 58419 59847: [398, 317, 636, 331]
land-ad-title: ΠΡΟΣΟΧΗ!!!: [75, 2013, 642, 2051]
suits-heading: ΚΟΣΤΟΥΜΙΑ: [1197, 1967, 1453, 1996]
table-row: Καρρὼ Πειρ. Πατραϊκῆς145115: [1197, 1751, 1453, 1774]
agora-body: Ἀγορὰ Λονδίνου: λίρα Ἀγγλίας 83.8712—84.…: [38, 856, 258, 914]
land-ad-line1: ΣΗΜΕΡΟΝ Κυριακὴ καὶ καθ' ὅλην τὴν ἑβδομά…: [75, 2057, 642, 2072]
table-row: Ἐλβετίας216.105.1: [38, 573, 390, 576]
